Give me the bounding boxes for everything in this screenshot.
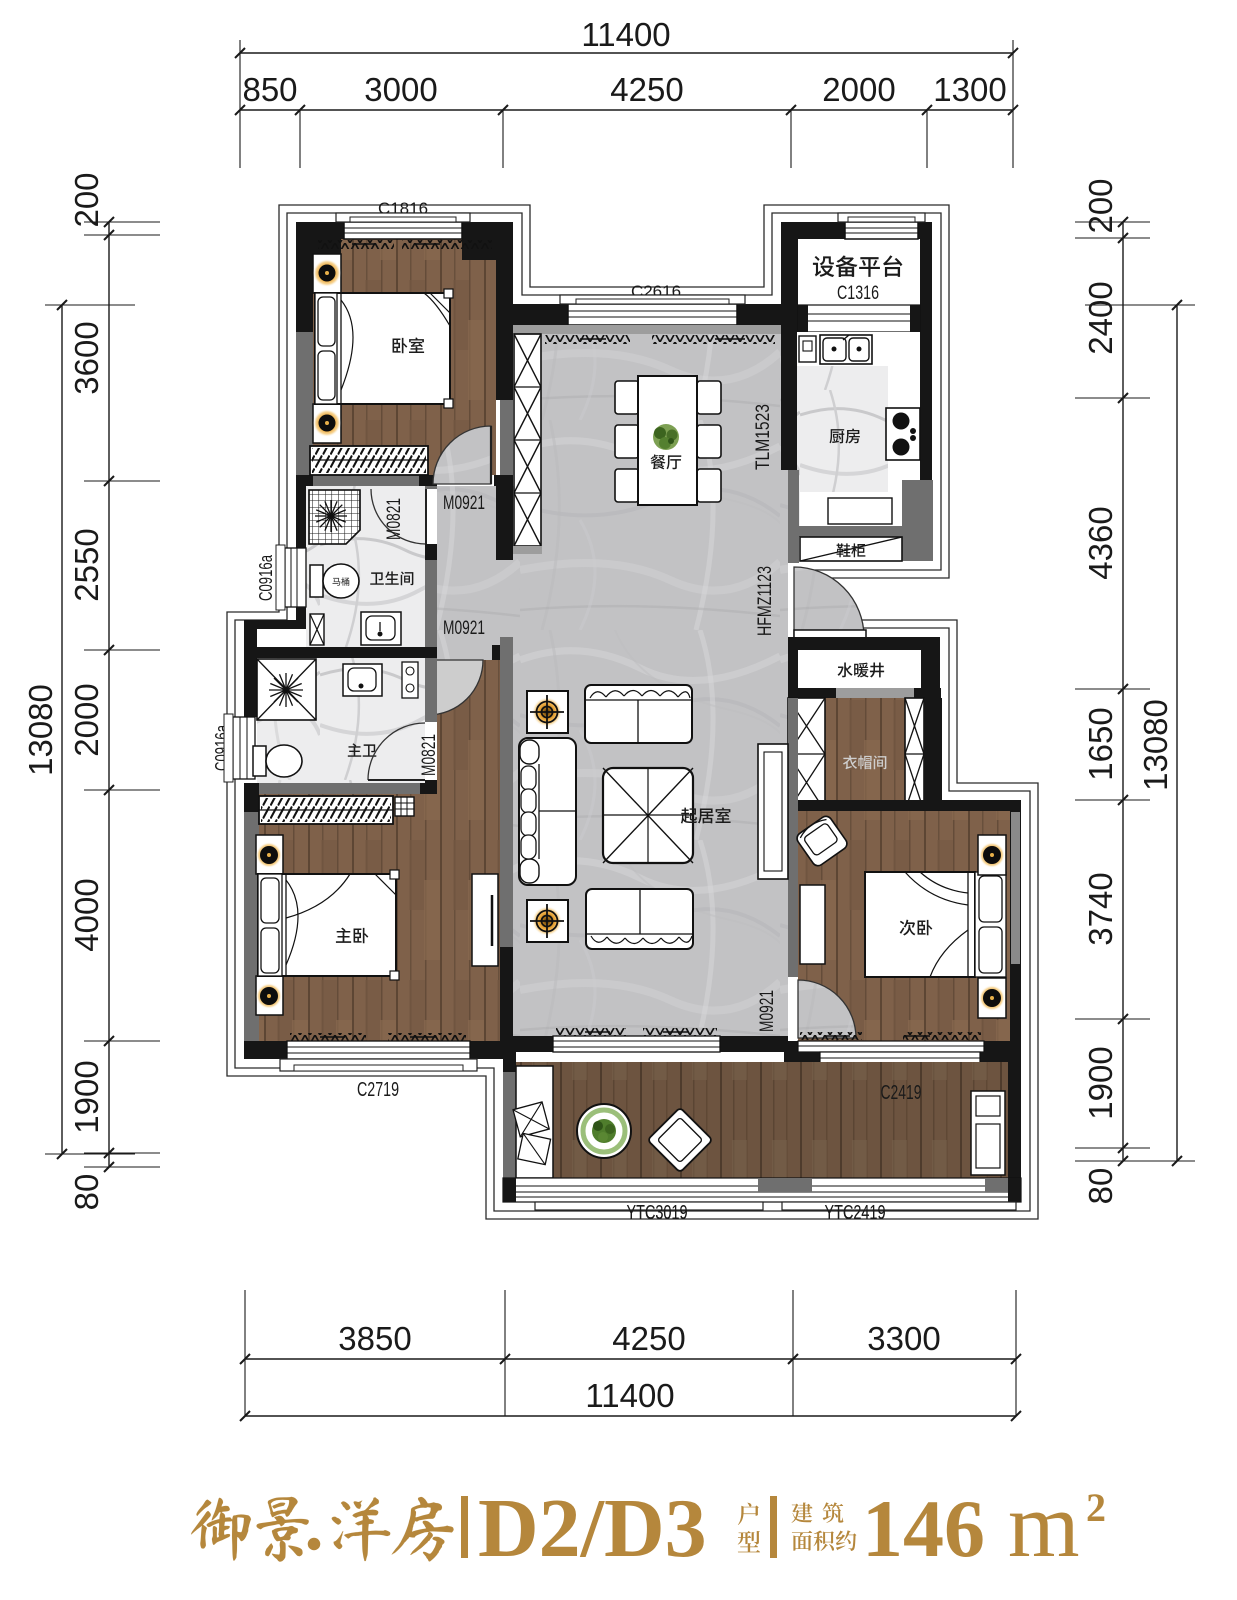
svg-text:146: 146 [862,1483,985,1574]
svg-text:1300: 1300 [933,71,1006,108]
svg-text:3300: 3300 [867,1320,940,1357]
svg-text:1650: 1650 [1082,707,1119,780]
svg-text:YTC3019: YTC3019 [627,1202,688,1224]
svg-text:D2/D3: D2/D3 [478,1482,707,1575]
svg-text:2000: 2000 [822,71,895,108]
svg-text:2400: 2400 [1082,281,1119,354]
svg-text:M0821: M0821 [419,734,440,776]
svg-text:M0921: M0921 [443,618,485,639]
svg-text:200: 200 [68,172,105,227]
svg-text:M0921: M0921 [757,990,778,1032]
svg-text:C2419: C2419 [881,1082,922,1104]
svg-text:M0821: M0821 [384,498,405,540]
svg-text:1900: 1900 [68,1060,105,1133]
svg-text:13080: 13080 [1137,699,1174,791]
svg-text:4000: 4000 [68,878,105,951]
svg-text:80: 80 [1082,1168,1119,1205]
svg-text:4360: 4360 [1082,506,1119,579]
svg-text:850: 850 [242,71,297,108]
svg-text:C0916a: C0916a [256,554,276,601]
svg-text:TLM1523: TLM1523 [753,404,774,470]
svg-text:4250: 4250 [610,71,683,108]
svg-text:4250: 4250 [612,1320,685,1357]
svg-text:2550: 2550 [68,528,105,601]
svg-text:C1316: C1316 [837,283,879,304]
svg-text:11400: 11400 [581,16,670,53]
svg-text:1900: 1900 [1082,1046,1119,1119]
svg-text:3000: 3000 [364,71,437,108]
svg-text:3600: 3600 [68,321,105,394]
svg-text:HFMZ1123: HFMZ1123 [755,566,776,636]
svg-text:m: m [1008,1474,1080,1576]
svg-text:11400: 11400 [585,1377,674,1414]
svg-text:C2719: C2719 [357,1079,399,1101]
svg-text:3850: 3850 [338,1320,411,1357]
svg-text:13080: 13080 [22,684,59,776]
svg-text:M0921: M0921 [443,493,485,514]
svg-text:200: 200 [1082,178,1119,233]
svg-text:3740: 3740 [1082,872,1119,945]
svg-text:80: 80 [68,1174,105,1211]
svg-text:YTC2419: YTC2419 [825,1202,886,1224]
svg-text:2000: 2000 [68,683,105,756]
svg-text:2: 2 [1086,1485,1106,1530]
